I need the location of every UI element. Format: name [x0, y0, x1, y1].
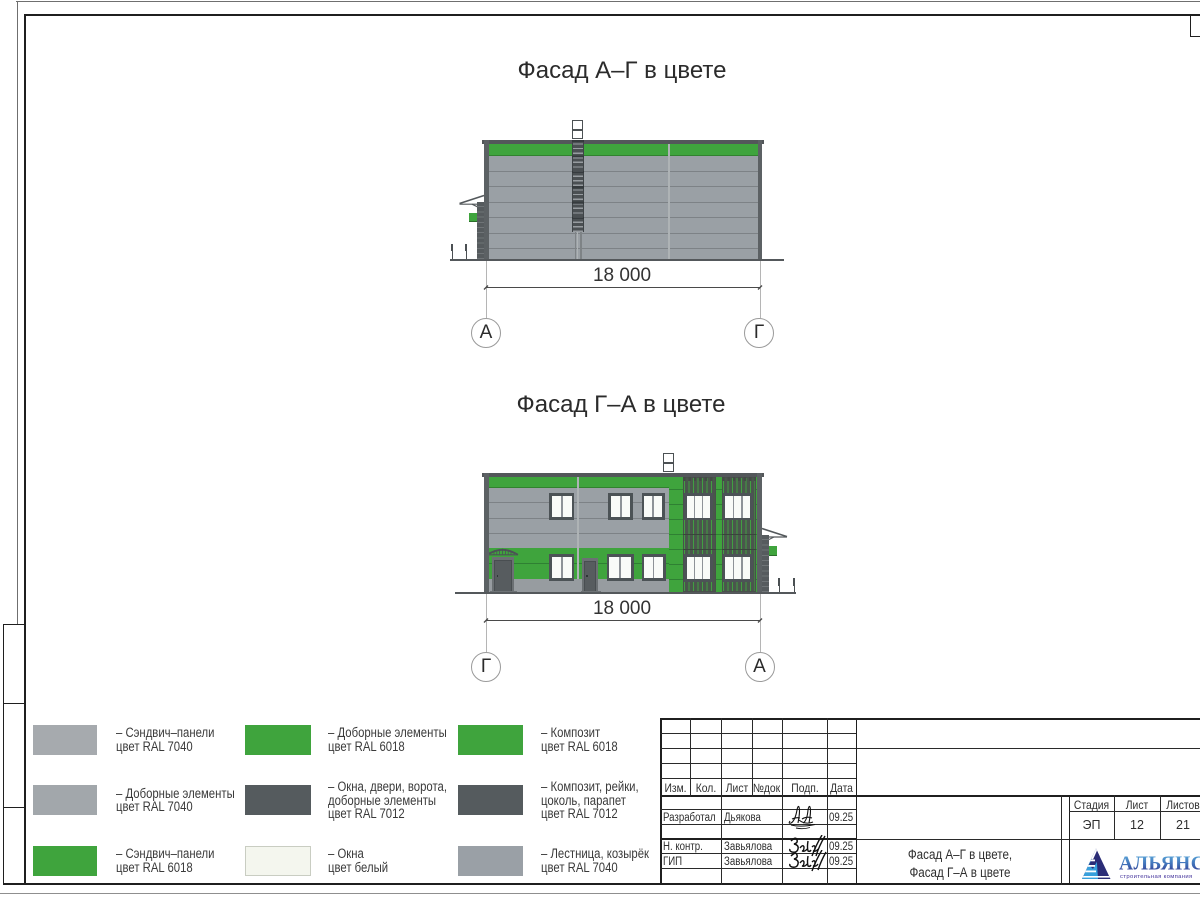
svg-text:строительная компания: строительная компания: [1120, 874, 1193, 880]
svg-text:АЛЬЯНС: АЛЬЯНС: [1119, 854, 1200, 875]
